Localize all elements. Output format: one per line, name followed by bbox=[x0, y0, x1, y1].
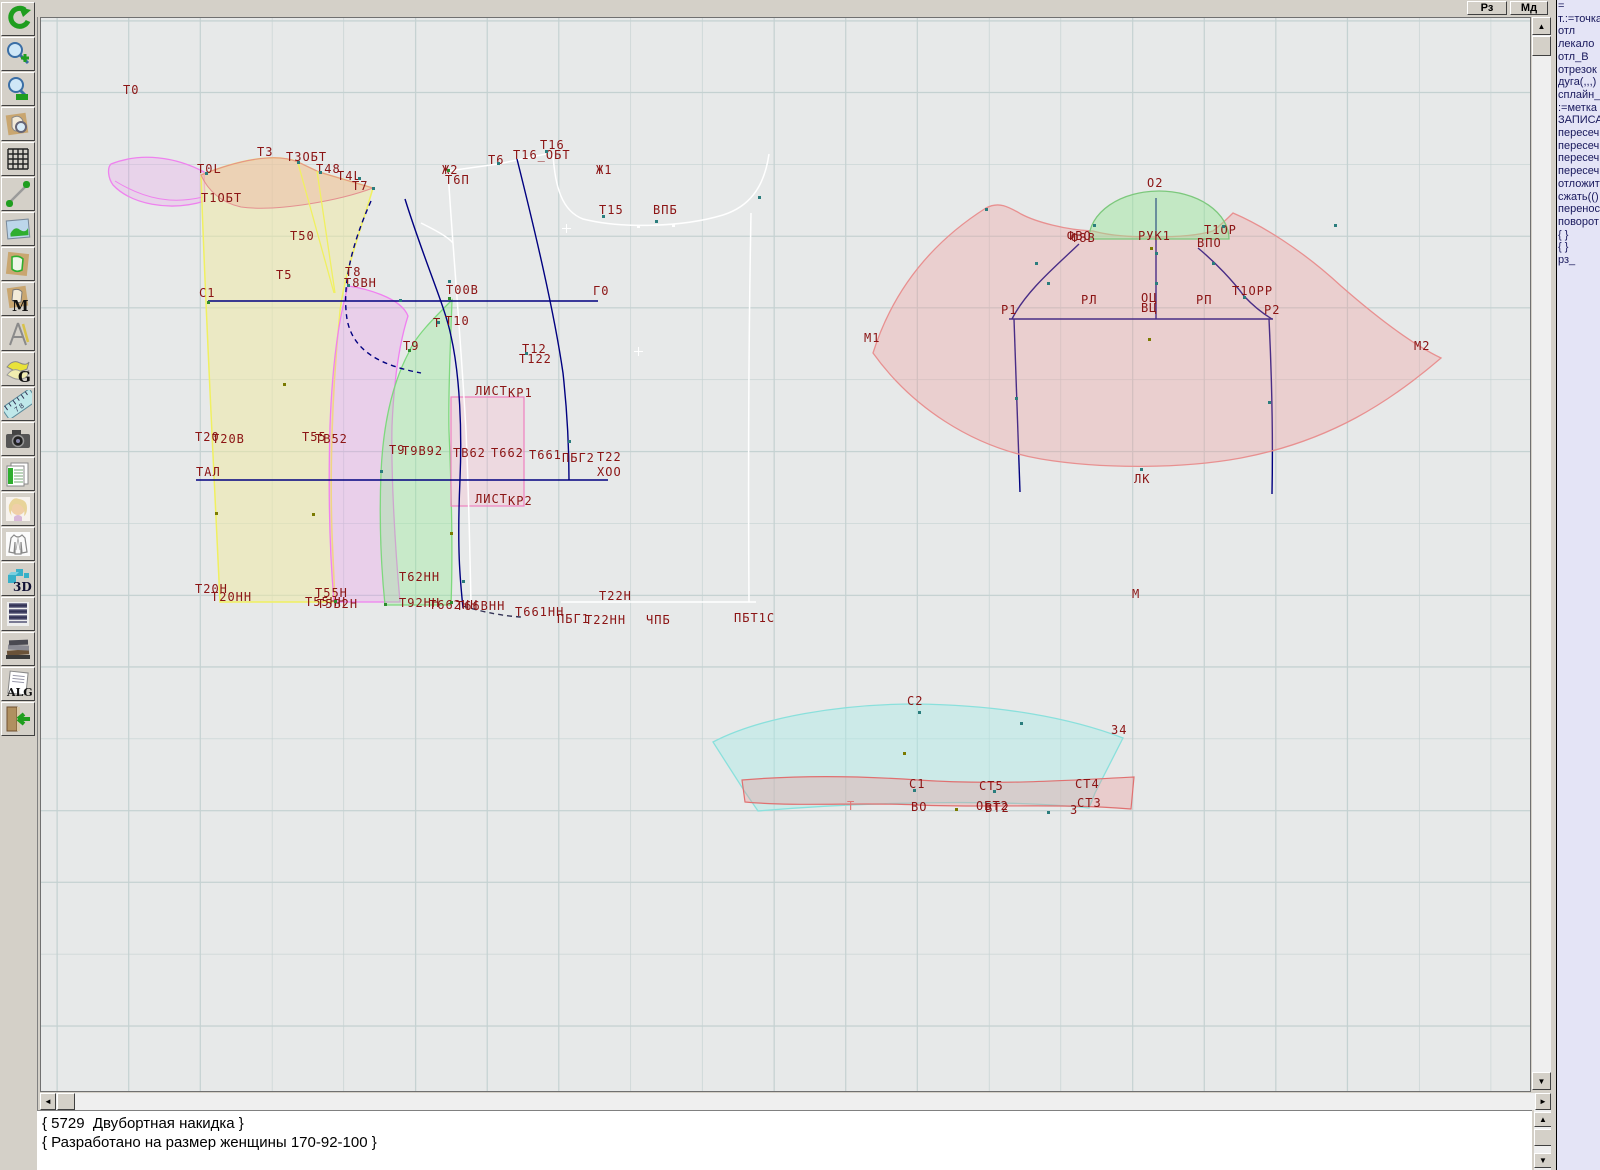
program-console: { 5729 Двубортная накидка } { Разработан… bbox=[37, 1110, 1532, 1170]
top-strip: Рз Мд bbox=[37, 0, 1555, 17]
pattern-g-icon[interactable]: G bbox=[1, 352, 35, 386]
image-icon[interactable] bbox=[1, 212, 35, 246]
command-item[interactable]: сплайн_ bbox=[1557, 89, 1600, 102]
construction-point bbox=[358, 177, 361, 180]
grid-icon[interactable] bbox=[1, 142, 35, 176]
construction-point bbox=[462, 580, 465, 583]
construction-point bbox=[655, 220, 658, 223]
construction-point bbox=[568, 440, 571, 443]
construction-point bbox=[758, 196, 761, 199]
command-item[interactable]: отложит bbox=[1557, 178, 1600, 191]
scroll-left-icon[interactable]: ◄ bbox=[40, 1093, 56, 1110]
construction-point bbox=[1334, 224, 1337, 227]
svg-text:M: M bbox=[12, 297, 29, 313]
command-item[interactable]: поворот bbox=[1557, 216, 1600, 229]
construction-point bbox=[1093, 224, 1096, 227]
construction-point bbox=[450, 532, 453, 535]
construction-point bbox=[1155, 282, 1158, 285]
command-item[interactable]: лекало bbox=[1557, 38, 1600, 51]
construction-point bbox=[1047, 282, 1050, 285]
construction-point bbox=[437, 321, 440, 324]
construction-point bbox=[334, 600, 337, 603]
command-item[interactable]: пересеч bbox=[1557, 140, 1600, 153]
command-item[interactable]: т.:=точка bbox=[1557, 13, 1600, 26]
command-item[interactable]: { } bbox=[1557, 229, 1600, 242]
canvas-vscroll-thumb[interactable] bbox=[1532, 36, 1551, 56]
scroll-up-icon[interactable]: ▲ bbox=[1532, 17, 1551, 35]
construction-point bbox=[297, 161, 300, 164]
construction-point bbox=[447, 169, 450, 172]
sheet-rect bbox=[451, 397, 524, 506]
construction-point bbox=[985, 208, 988, 211]
construction-point bbox=[1035, 262, 1038, 265]
garment-sketch-icon[interactable] bbox=[1, 527, 35, 561]
construction-point bbox=[955, 808, 958, 811]
construction-point bbox=[205, 172, 208, 175]
construction-point bbox=[1150, 247, 1153, 250]
books-icon[interactable] bbox=[1, 632, 35, 666]
construction-point bbox=[637, 225, 640, 228]
construction-point bbox=[497, 162, 500, 165]
svg-text:ALG: ALG bbox=[6, 686, 32, 698]
construction-point bbox=[448, 280, 451, 283]
document-list-icon[interactable] bbox=[1, 597, 35, 631]
pattern-m-icon[interactable]: M bbox=[1, 282, 35, 316]
construction-point bbox=[380, 470, 383, 473]
construction-point bbox=[1212, 262, 1215, 265]
drawing-canvas[interactable]: Т0Т3Т3ОБТТ0LТ1ОБТТ48Т4LТ7Т50Т5Т8Т8ВНС1Т0… bbox=[40, 17, 1531, 1092]
command-item[interactable]: дуга(,,,) bbox=[1557, 76, 1600, 89]
command-item[interactable]: { } bbox=[1557, 241, 1600, 254]
alg-document-icon[interactable]: ALG bbox=[1, 667, 35, 701]
cross-marker bbox=[562, 224, 571, 233]
construction-point bbox=[1243, 296, 1246, 299]
belt-band-piece bbox=[742, 777, 1134, 809]
cross-marker bbox=[634, 347, 643, 356]
command-item[interactable]: = bbox=[1557, 0, 1600, 13]
construction-point bbox=[399, 299, 402, 302]
camera-icon[interactable] bbox=[1, 422, 35, 456]
construction-point bbox=[207, 301, 210, 304]
undo-icon[interactable] bbox=[1, 2, 35, 36]
construction-point bbox=[408, 349, 411, 352]
svg-text:3D: 3D bbox=[13, 580, 32, 593]
zoom-in-icon[interactable] bbox=[1, 37, 35, 71]
construction-point bbox=[1155, 252, 1158, 255]
canvas-hscroll-thumb[interactable] bbox=[57, 1093, 75, 1110]
canvas-vscrollbar[interactable] bbox=[1532, 17, 1551, 1090]
construction-point bbox=[918, 711, 921, 714]
console-scroll-down-icon[interactable]: ▼ bbox=[1534, 1153, 1552, 1168]
cape-piece bbox=[873, 205, 1441, 466]
construction-point bbox=[215, 512, 218, 515]
console-vscroll-thumb[interactable] bbox=[1534, 1129, 1552, 1146]
construction-point bbox=[1268, 401, 1271, 404]
ruler-icon[interactable]: 7 8 bbox=[1, 387, 35, 421]
construction-point bbox=[319, 171, 322, 174]
console-line-2: { Разработано на размер женщины 170-92-1… bbox=[42, 1134, 377, 1151]
construction-point bbox=[913, 789, 916, 792]
console-scroll-up-icon[interactable]: ▲ bbox=[1534, 1112, 1552, 1127]
exit-icon[interactable] bbox=[1, 702, 35, 736]
construction-point bbox=[448, 297, 451, 300]
construction-point bbox=[602, 215, 605, 218]
construction-point bbox=[672, 224, 675, 227]
construction-point bbox=[1047, 811, 1050, 814]
rz-button[interactable]: Рз bbox=[1467, 1, 1507, 15]
construction-point bbox=[384, 603, 387, 606]
command-item[interactable]: :=метка bbox=[1557, 102, 1600, 115]
construction-point bbox=[283, 383, 286, 386]
command-item[interactable]: пересеч bbox=[1557, 152, 1600, 165]
command-item[interactable]: рз_ bbox=[1557, 254, 1600, 267]
construction-point bbox=[903, 752, 906, 755]
command-item[interactable]: отрезок bbox=[1557, 64, 1600, 77]
command-item[interactable]: отл bbox=[1557, 25, 1600, 38]
construction-point bbox=[372, 187, 375, 190]
white-seam-lines bbox=[421, 154, 769, 602]
drafting-compass-icon[interactable] bbox=[1, 317, 35, 351]
command-item[interactable]: перенос bbox=[1557, 203, 1600, 216]
construction-point bbox=[1020, 722, 1023, 725]
toolbar: M G 7 8 3D ALG bbox=[0, 0, 38, 1170]
pattern-piece-icon[interactable] bbox=[1, 247, 35, 281]
construction-point bbox=[1140, 468, 1143, 471]
scroll-down-icon[interactable]: ▼ bbox=[1532, 1072, 1551, 1090]
construction-point bbox=[993, 790, 996, 793]
3d-icon[interactable]: 3D bbox=[1, 562, 35, 596]
construction-point bbox=[450, 601, 453, 604]
md-button[interactable]: Мд bbox=[1510, 1, 1548, 15]
construction-point bbox=[1015, 397, 1018, 400]
construction-point bbox=[1148, 338, 1151, 341]
construction-point bbox=[1222, 225, 1225, 228]
pattern-cad-window: M G 7 8 3D ALG Рз Мд bbox=[0, 0, 1600, 1170]
command-item[interactable]: отл_В bbox=[1557, 51, 1600, 64]
construction-point bbox=[347, 284, 350, 287]
svg-text:G: G bbox=[18, 368, 31, 383]
sleeve-cap-piece bbox=[1089, 191, 1229, 239]
scroll-right-icon[interactable]: ► bbox=[1535, 1093, 1551, 1110]
pattern-preview-icon[interactable] bbox=[1, 107, 35, 141]
spreadsheet-icon[interactable] bbox=[1, 457, 35, 491]
pattern-drawing bbox=[41, 18, 1530, 1091]
construction-point bbox=[525, 352, 528, 355]
command-item[interactable]: ЗАПИСА bbox=[1557, 114, 1600, 127]
construction-point bbox=[312, 513, 315, 516]
command-item[interactable]: пересеч bbox=[1557, 165, 1600, 178]
zoom-out-icon[interactable] bbox=[1, 72, 35, 106]
console-line-1: { 5729 Двубортная накидка } bbox=[42, 1115, 244, 1132]
canvas-hscrollbar[interactable] bbox=[40, 1093, 1551, 1110]
measure-line-icon[interactable] bbox=[1, 177, 35, 211]
command-item[interactable]: сжать(() bbox=[1557, 191, 1600, 204]
construction-point bbox=[545, 150, 548, 153]
command-item[interactable]: пересеч bbox=[1557, 127, 1600, 140]
command-panel: =т.:=точкаотллекалоотл_Вотрезокдуга(,,,)… bbox=[1556, 0, 1600, 1170]
portrait-icon[interactable] bbox=[1, 492, 35, 526]
